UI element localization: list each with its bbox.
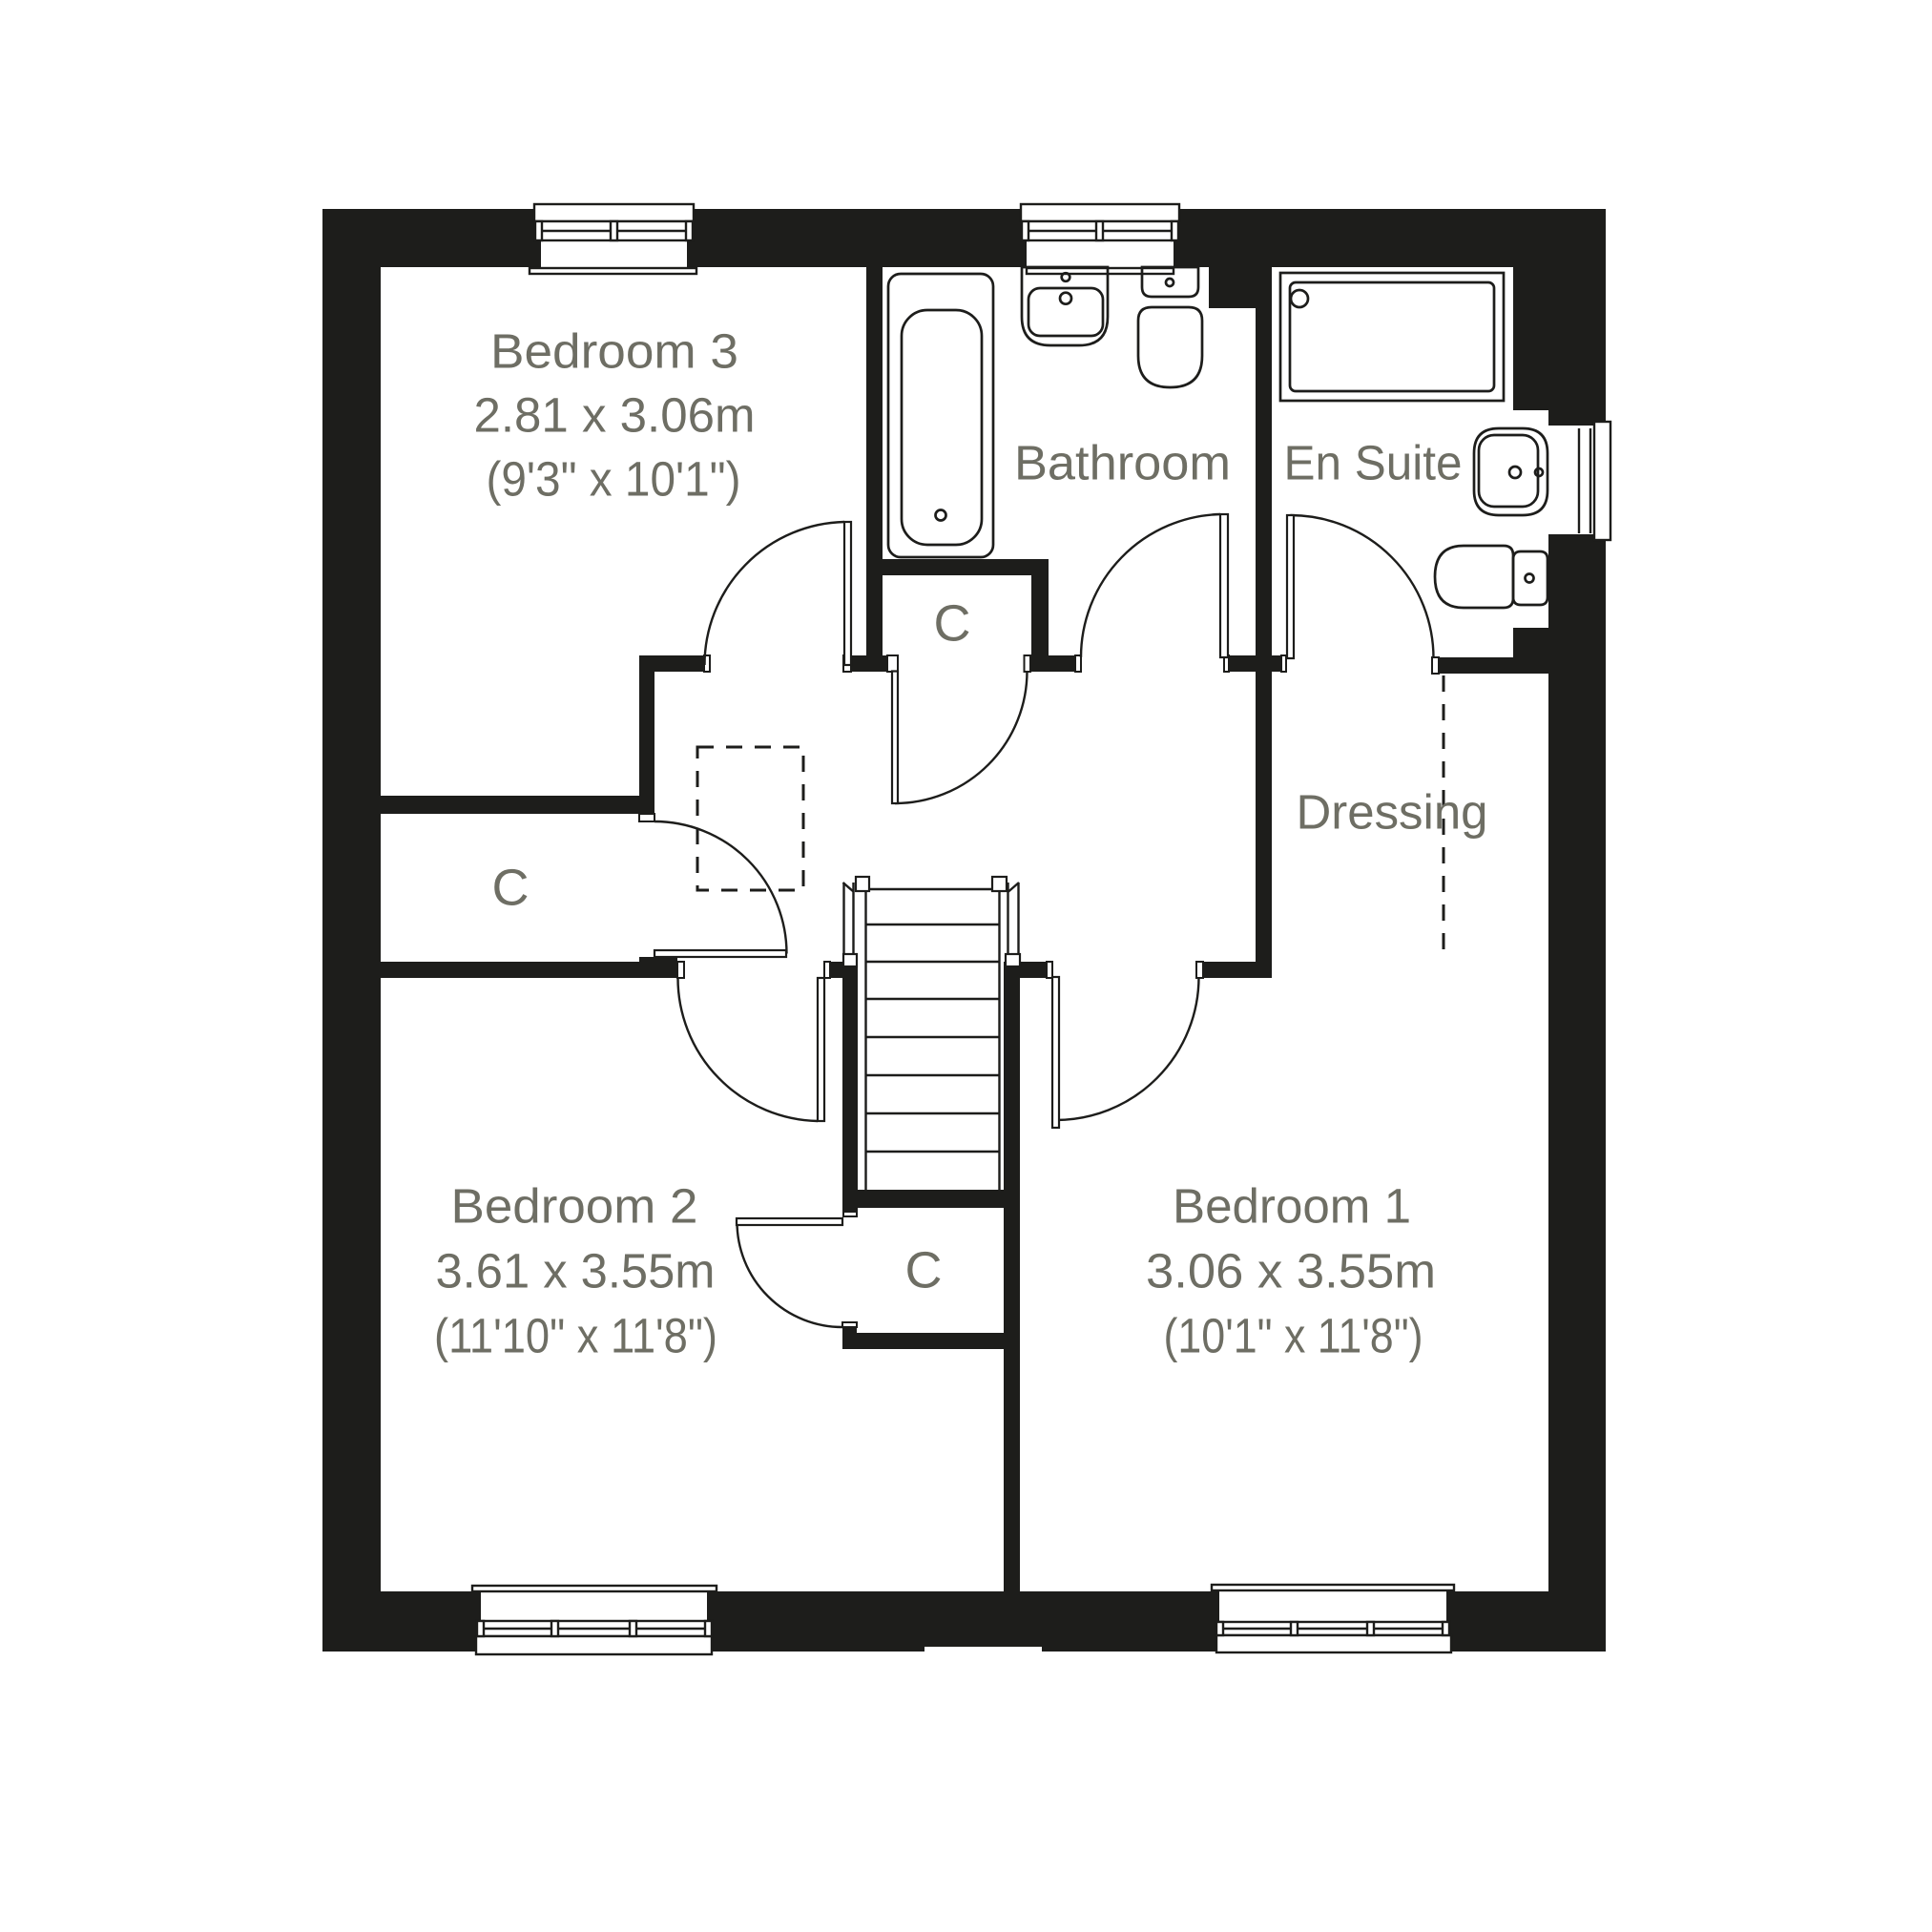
svg-text:C: C: [492, 860, 530, 917]
svg-text:En Suite: En Suite: [1284, 436, 1463, 490]
svg-text:Dressing: Dressing: [1297, 785, 1488, 840]
svg-text:C: C: [934, 595, 971, 653]
svg-text:3.06 x 3.55m: 3.06 x 3.55m: [1146, 1244, 1436, 1298]
svg-text:2.81 x 3.06m: 2.81 x 3.06m: [474, 388, 756, 443]
svg-text:Bedroom 3: Bedroom 3: [490, 324, 738, 379]
svg-text:(10'1" x 11'8"): (10'1" x 11'8"): [1164, 1309, 1423, 1363]
svg-text:Bedroom 2: Bedroom 2: [451, 1179, 698, 1234]
svg-text:(9'3" x 10'1"): (9'3" x 10'1"): [487, 452, 741, 507]
svg-text:(11'10" x 11'8"): (11'10" x 11'8"): [434, 1309, 717, 1363]
svg-text:Bathroom: Bathroom: [1014, 436, 1231, 490]
svg-text:C: C: [905, 1242, 943, 1299]
svg-text:Bedroom 1: Bedroom 1: [1173, 1179, 1411, 1234]
svg-text:3.61 x 3.55m: 3.61 x 3.55m: [436, 1244, 716, 1298]
